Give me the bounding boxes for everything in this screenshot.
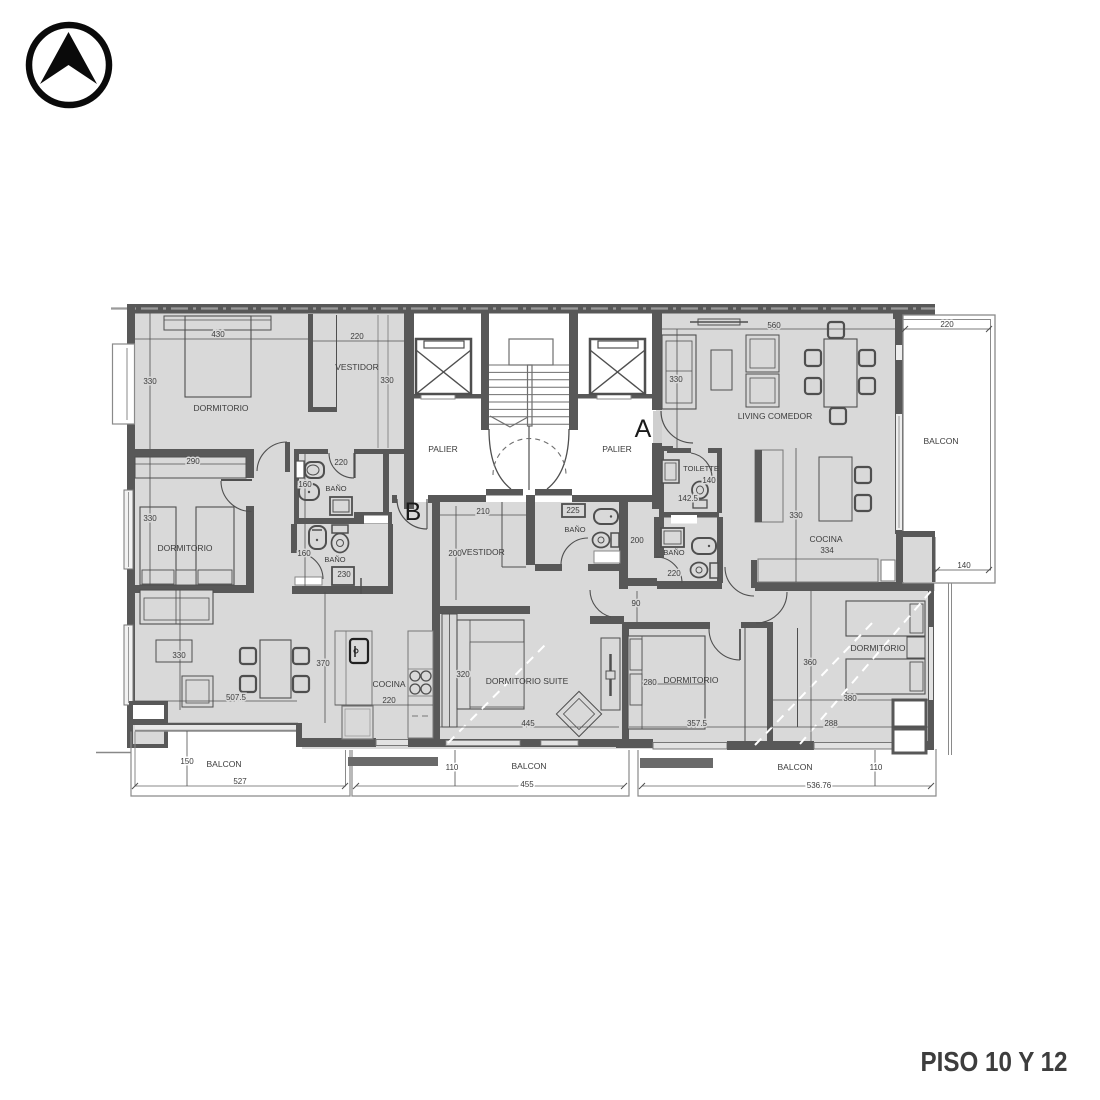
svg-text:210: 210 — [476, 507, 490, 516]
svg-text:330: 330 — [143, 514, 157, 523]
svg-text:COCINA: COCINA — [372, 679, 405, 689]
svg-text:220: 220 — [350, 332, 364, 341]
svg-text:LIVING COMEDOR: LIVING COMEDOR — [738, 411, 813, 421]
svg-text:TOILETTE: TOILETTE — [683, 464, 719, 473]
svg-text:142.5: 142.5 — [678, 494, 699, 503]
svg-text:BALCON: BALCON — [778, 762, 813, 772]
svg-text:PISO 10 Y 12: PISO 10 Y 12 — [921, 1046, 1068, 1077]
svg-text:330: 330 — [669, 375, 683, 384]
svg-text:507.5: 507.5 — [226, 693, 247, 702]
svg-text:220: 220 — [667, 569, 681, 578]
svg-text:220: 220 — [334, 458, 348, 467]
svg-text:B: B — [405, 498, 422, 526]
svg-text:BALCON: BALCON — [512, 761, 547, 771]
svg-text:A: A — [635, 415, 652, 443]
svg-text:150: 150 — [180, 757, 194, 766]
svg-text:380: 380 — [843, 694, 857, 703]
svg-text:VESTIDOR: VESTIDOR — [461, 547, 504, 557]
svg-text:160: 160 — [298, 480, 312, 489]
svg-text:445: 445 — [521, 719, 535, 728]
svg-text:290: 290 — [186, 457, 200, 466]
svg-text:110: 110 — [446, 763, 459, 772]
svg-text:BALCON: BALCON — [924, 436, 959, 446]
svg-text:330: 330 — [380, 376, 394, 385]
svg-text:360: 360 — [803, 658, 817, 667]
svg-text:DORMITORIO: DORMITORIO — [193, 403, 248, 413]
svg-text:PALIER: PALIER — [428, 444, 458, 454]
svg-text:320: 320 — [456, 670, 470, 679]
svg-text:330: 330 — [143, 377, 157, 386]
svg-text:430: 430 — [211, 330, 225, 339]
svg-text:140: 140 — [702, 476, 716, 485]
svg-text:560: 560 — [767, 321, 781, 330]
svg-text:200: 200 — [630, 536, 644, 545]
svg-text:370: 370 — [316, 659, 330, 668]
svg-text:455: 455 — [520, 780, 534, 789]
svg-text:220: 220 — [940, 320, 954, 329]
svg-text:225: 225 — [566, 506, 580, 515]
svg-text:527: 527 — [233, 777, 247, 786]
svg-text:DORMITORIO: DORMITORIO — [850, 643, 905, 653]
svg-text:DORMITORIO SUITE: DORMITORIO SUITE — [486, 676, 569, 686]
svg-text:230: 230 — [337, 570, 351, 579]
svg-text:536.76: 536.76 — [807, 781, 832, 790]
svg-text:110: 110 — [870, 763, 883, 772]
svg-text:200: 200 — [448, 549, 462, 558]
svg-text:140: 140 — [957, 561, 971, 570]
svg-text:288: 288 — [824, 719, 838, 728]
svg-text:COCINA: COCINA — [809, 534, 842, 544]
svg-text:160: 160 — [297, 549, 311, 558]
svg-text:PALIER: PALIER — [602, 444, 632, 454]
svg-text:BAÑO: BAÑO — [663, 548, 684, 557]
svg-text:90: 90 — [632, 599, 641, 608]
svg-text:357.5: 357.5 — [687, 719, 708, 728]
svg-text:DORMITORIO: DORMITORIO — [663, 675, 718, 685]
svg-text:330: 330 — [172, 651, 186, 660]
svg-text:BAÑO: BAÑO — [324, 555, 345, 564]
svg-text:DORMITORIO: DORMITORIO — [157, 543, 212, 553]
svg-text:BAÑO: BAÑO — [564, 525, 585, 534]
svg-text:BAÑO: BAÑO — [325, 484, 346, 493]
svg-text:BALCON: BALCON — [207, 759, 242, 769]
svg-text:280: 280 — [643, 678, 657, 687]
svg-text:330: 330 — [789, 511, 803, 520]
svg-text:VESTIDOR: VESTIDOR — [335, 362, 378, 372]
svg-text:334: 334 — [820, 546, 834, 555]
svg-text:220: 220 — [382, 696, 396, 705]
